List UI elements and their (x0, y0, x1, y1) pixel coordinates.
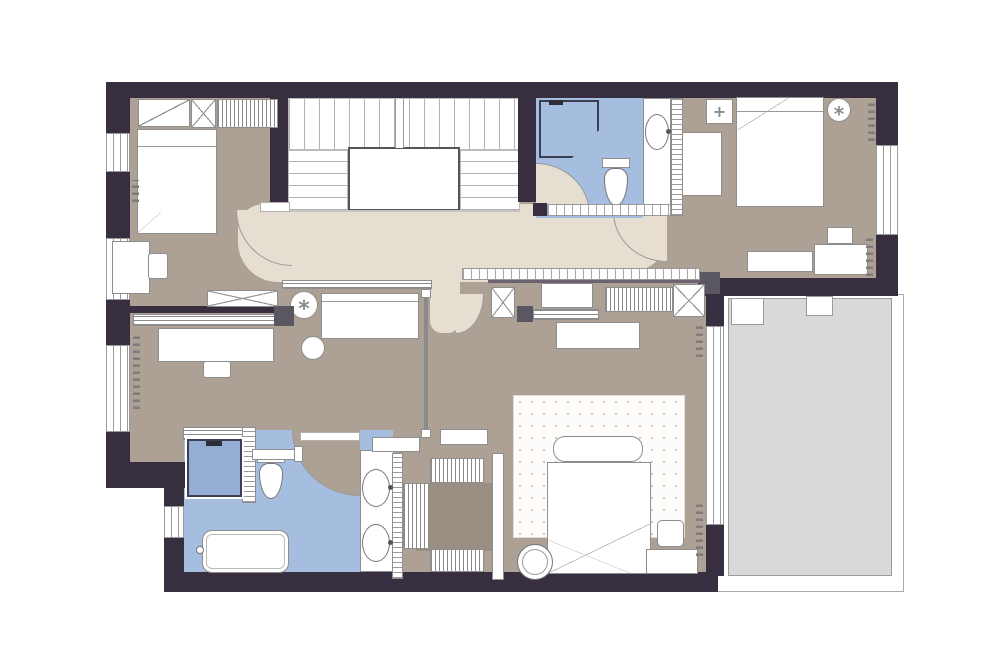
window-left-lower (164, 506, 184, 538)
toilet-tank-top (602, 158, 630, 168)
wall-left-lower-2 (164, 538, 184, 574)
threshold-bathroom-top (547, 204, 671, 216)
dresser-master (646, 549, 698, 574)
plant-glyph: * (298, 297, 310, 322)
wardrobe-dressing (682, 132, 722, 196)
closet-rail-left (403, 483, 429, 549)
headboard-cushion-master (553, 436, 643, 462)
wall-bedroom-top-right-bottom (698, 278, 898, 296)
wardrobe-xbox-bedroom1 (191, 99, 216, 128)
sink-bottom-1 (362, 469, 390, 507)
wardrobe-xbox-master-left (491, 287, 515, 318)
floor-plan: * + * (0, 0, 1000, 666)
ceiling-lamp-glyph: + (713, 102, 726, 121)
shower-fixture (206, 441, 222, 446)
wardrobe-top-band-master (462, 268, 700, 280)
threshold-bedroom1-door (260, 202, 290, 212)
wall-master-top-line (488, 280, 708, 283)
drawer-unit-bedroom-top-right (814, 244, 868, 275)
table-lamp-glyph: * (834, 102, 844, 126)
wall-master-balcony-2 (706, 525, 724, 576)
desk-study (158, 328, 274, 362)
shelf-band-master (533, 309, 599, 320)
ceiling-lamp-icon: + (706, 99, 733, 124)
radiator-study (133, 335, 140, 409)
column-master (517, 306, 533, 322)
wardrobe-xbox-study (207, 290, 278, 307)
balcony-planter-2 (806, 296, 833, 316)
daybed-center (321, 293, 419, 339)
pouf-center (301, 336, 325, 360)
door-jamb-partition-top (421, 289, 431, 298)
radiator-bedroom-top-right-2 (866, 238, 873, 276)
chair-study (203, 361, 231, 378)
window-left-1 (106, 133, 130, 172)
toilet-privacy-wall-end (294, 446, 303, 462)
outside-mask (0, 488, 164, 666)
shower-stall (187, 439, 242, 497)
wall-left-2 (106, 172, 130, 238)
shelf-band-study (133, 314, 279, 326)
toilet-privacy-wall (252, 449, 298, 460)
sink-faucet-2 (388, 540, 393, 545)
radiator-master-top (696, 325, 703, 357)
partition-closet-master (492, 453, 504, 580)
radiator-master-bottom (696, 502, 703, 556)
plant-icon: * (290, 291, 318, 319)
window-master-balcony (706, 326, 724, 525)
low-cabinet-center (282, 280, 432, 289)
window-right (876, 145, 898, 235)
wall-study-top (126, 306, 294, 313)
pouf-master (517, 544, 553, 580)
sink-faucet-1 (388, 485, 393, 490)
balcony-planter-1 (731, 298, 764, 325)
vanity-table-2 (440, 429, 488, 445)
side-box-bedroom-top-right (827, 227, 853, 244)
nightstand-master (657, 520, 684, 547)
staircase-upper-flight (288, 98, 520, 150)
bed-bedroom1 (137, 129, 217, 234)
shower-fixture-top (549, 100, 563, 105)
staircase-left-flight (288, 150, 348, 211)
closet-rail-bottom (430, 549, 484, 572)
partition-center-master (424, 298, 428, 430)
staircase-edge-line (288, 210, 520, 212)
vanity-table-1 (372, 437, 420, 452)
wall-left-1 (106, 98, 130, 133)
staircase-center-rail (395, 99, 404, 148)
wall-right-1 (876, 98, 898, 145)
wall-master-balcony-1 (706, 296, 724, 326)
sink-bottom-2 (362, 524, 390, 562)
balcony-floor (728, 298, 892, 576)
radiator-bedroom1 (132, 180, 139, 202)
desk-bedroom1 (112, 241, 150, 294)
bathtub-faucet (196, 546, 204, 554)
wardrobe-hanging-master (605, 287, 673, 312)
wall-stair-bathroom (518, 98, 536, 202)
closet-wall-left (392, 453, 403, 579)
closet-rail-top (430, 458, 484, 483)
window-left-3 (106, 345, 130, 432)
bench-master (556, 322, 640, 349)
tv-console-master (541, 283, 593, 308)
staircase-landing (348, 147, 460, 211)
wall-bottom (164, 572, 718, 592)
bed-bedroom-top-right (736, 97, 824, 207)
shower-wall-right (242, 427, 256, 503)
cabinet-open-door (138, 99, 190, 127)
wardrobe-hanging-bedroom1 (217, 99, 278, 128)
wall-left-lower-1 (164, 488, 184, 506)
door-jamb-partition-bottom (421, 429, 431, 438)
nightstand-lamp-icon: * (827, 98, 851, 122)
door-jamb-bathroom-top (533, 203, 547, 216)
threshold-bathroom-bottom (300, 432, 360, 441)
column-center (274, 306, 294, 326)
sink-faucet-top (666, 129, 671, 134)
radiator-bedroom-top-right-1 (868, 99, 875, 141)
bed-master (547, 462, 651, 574)
desk-bedroom-top-right (747, 251, 813, 272)
wall-left-step (106, 462, 186, 488)
chair-bedroom1 (148, 253, 168, 279)
wardrobe-xbox-master-right (673, 284, 705, 317)
bathtub (202, 530, 289, 573)
staircase-right-flight (460, 150, 520, 211)
wall-top (106, 82, 898, 98)
